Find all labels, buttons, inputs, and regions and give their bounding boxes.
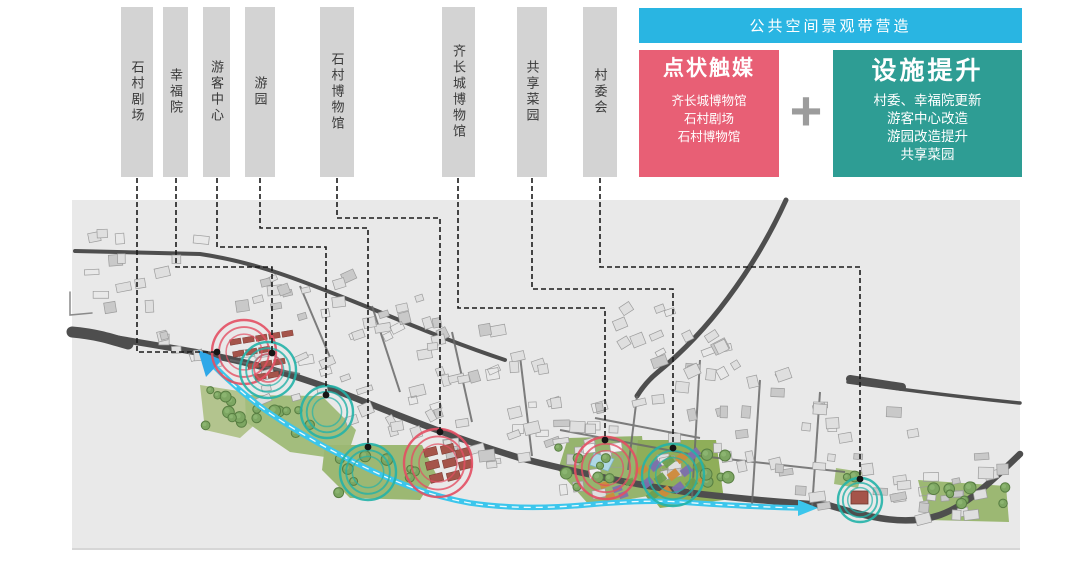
point-item: 齐长城博物馆: [639, 92, 779, 110]
leader-dot-village-committee: [857, 476, 864, 483]
facility-upgrade-title: 设施提升: [833, 56, 1022, 86]
planning-diagram: 石村剧场 幸福院 游客中心 游园 石村博物馆 齐长城博物馆 共享菜园 村委会 公…: [0, 0, 1067, 561]
point-catalyst-box: 点状触媒 齐长城博物馆 石村剧场 石村博物馆: [639, 50, 779, 177]
plus-icon: +: [779, 50, 833, 170]
point-item: 石村剧场: [639, 110, 779, 128]
leader-dot-shared-veg-garden: [670, 445, 677, 452]
map-label-village-committee: 村委会: [583, 7, 617, 177]
map-label-shicun-museum: 石村博物馆: [320, 7, 354, 177]
facility-item: 村委、幸福院更新: [833, 92, 1022, 110]
leader-dot-qi-wall-museum: [602, 437, 609, 444]
point-catalyst-title: 点状触媒: [639, 55, 779, 83]
point-item: 石村博物馆: [639, 128, 779, 146]
leader-dot-garden-park: [365, 444, 372, 451]
facility-item: 共享菜园: [833, 146, 1022, 164]
map-label-qi-wall-museum: 齐长城博物馆: [442, 7, 475, 177]
map-label-shicun-theater: 石村剧场: [121, 7, 153, 177]
map-label-shared-veg-garden: 共享菜园: [517, 7, 547, 177]
facility-item: 游园改造提升: [833, 128, 1022, 146]
leader-dot-shicun-museum: [437, 429, 444, 436]
map-label-xingfu-home: 幸福院: [163, 7, 188, 177]
map-label-visitor-center: 游客中心: [203, 7, 230, 177]
leader-dot-shicun-theater: [214, 349, 221, 356]
facility-item: 游客中心改造: [833, 110, 1022, 128]
facility-upgrade-items: 村委、幸福院更新 游客中心改造 游园改造提升 共享菜园: [833, 92, 1022, 164]
point-catalyst-items: 齐长城博物馆 石村剧场 石村博物馆: [639, 92, 779, 146]
map-label-garden-park: 游园: [245, 7, 275, 177]
leader-dot-visitor-center: [323, 392, 330, 399]
banner-title: 公共空间景观带营造: [639, 8, 1022, 43]
leader-dot-xingfu-home: [269, 350, 276, 357]
facility-upgrade-box: 设施提升 村委、幸福院更新 游客中心改造 游园改造提升 共享菜园: [833, 50, 1022, 177]
map-bottom-edge: [72, 548, 1020, 550]
committee-building: [851, 491, 868, 504]
